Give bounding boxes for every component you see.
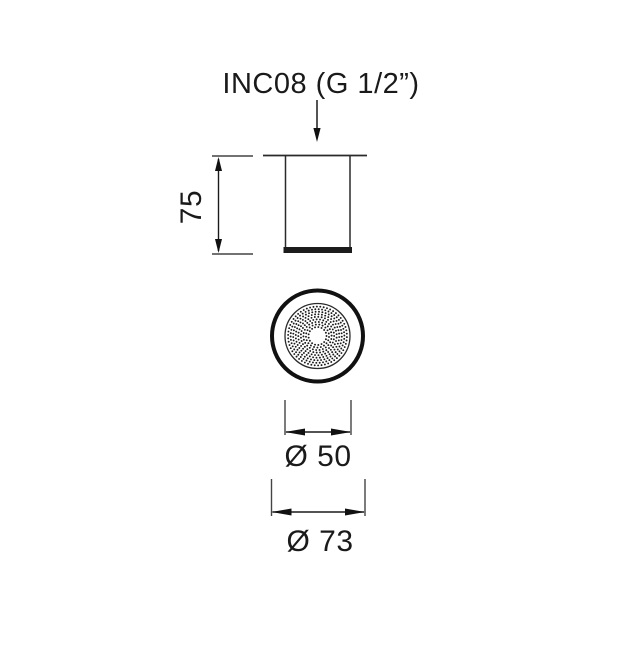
spray-nozzle-dot bbox=[305, 317, 307, 319]
spray-nozzle-dot bbox=[341, 332, 343, 334]
spray-nozzle-dot bbox=[303, 309, 305, 311]
spray-nozzle-dot bbox=[311, 311, 313, 313]
spray-nozzle-dot bbox=[334, 327, 336, 329]
spray-nozzle-dot bbox=[295, 331, 297, 333]
spray-nozzle-dot bbox=[341, 339, 343, 341]
spray-nozzle-dot bbox=[336, 320, 338, 322]
spray-nozzle-dot bbox=[321, 309, 323, 311]
spray-nozzle-dot bbox=[325, 312, 327, 314]
spray-nozzle-dot bbox=[335, 330, 337, 332]
spray-nozzle-dot bbox=[328, 347, 330, 349]
spray-nozzle-dot bbox=[331, 335, 333, 337]
spray-nozzle-dot bbox=[305, 314, 307, 316]
dim-arrow-right bbox=[345, 509, 365, 516]
spray-nozzle-dot bbox=[335, 351, 337, 353]
spray-nozzle-dot bbox=[339, 350, 341, 352]
dim-arrow-left bbox=[272, 509, 292, 516]
spray-nozzle-dot bbox=[296, 356, 298, 358]
spray-nozzle-dot bbox=[307, 357, 309, 359]
spray-nozzle-dot bbox=[297, 344, 299, 346]
spray-nozzle-dot bbox=[336, 333, 338, 335]
spray-nozzle-dot bbox=[333, 317, 335, 319]
spray-nozzle-dot bbox=[342, 349, 344, 351]
spray-nozzle-dot bbox=[305, 350, 307, 352]
spray-nozzle-dot bbox=[327, 329, 329, 331]
spray-nozzle-dot bbox=[314, 344, 316, 346]
spray-nozzle-dot bbox=[312, 319, 314, 321]
spray-nozzle-dot bbox=[319, 319, 321, 321]
spray-nozzle-dot bbox=[317, 316, 319, 318]
spray-nozzle-dot bbox=[312, 362, 314, 364]
spray-nozzle-dot bbox=[335, 346, 337, 348]
spray-nozzle-dot bbox=[309, 320, 311, 322]
spray-nozzle-dot bbox=[330, 356, 332, 358]
spray-nozzle-dot bbox=[324, 309, 326, 311]
spray-nozzle-dot bbox=[338, 355, 340, 357]
side-view-cylinder bbox=[263, 156, 367, 254]
spray-nozzle-dot bbox=[311, 322, 313, 324]
spray-nozzle-dot bbox=[315, 311, 317, 313]
spray-nozzle-dot bbox=[323, 306, 325, 308]
spray-nozzle-dot bbox=[309, 307, 311, 309]
spray-nozzle-dot bbox=[327, 339, 329, 341]
spray-nozzle-dot bbox=[293, 353, 295, 355]
spray-nozzle-dot bbox=[346, 336, 348, 338]
spray-nozzle-dot bbox=[338, 333, 340, 335]
spray-nozzle-dot bbox=[324, 353, 326, 355]
spray-nozzle-dot bbox=[323, 358, 325, 360]
spray-nozzle-dot bbox=[325, 349, 327, 351]
spray-nozzle-dot bbox=[318, 324, 320, 326]
spray-nozzle-dot bbox=[301, 360, 303, 362]
inner-diameter-label: Ø 50 bbox=[284, 440, 351, 473]
spray-nozzle-dot bbox=[313, 346, 315, 348]
spray-nozzle-dot bbox=[289, 324, 291, 326]
spray-nozzle-dot bbox=[343, 338, 345, 340]
spray-nozzle-dot bbox=[306, 339, 308, 341]
height-dimension-label: 75 bbox=[175, 190, 208, 224]
spray-nozzle-dot bbox=[343, 341, 345, 343]
spray-nozzle-dot bbox=[311, 353, 313, 355]
spray-nozzle-dot bbox=[340, 348, 342, 350]
spray-nozzle-dot bbox=[312, 348, 314, 350]
spray-nozzle-dot bbox=[316, 352, 318, 354]
spray-nozzle-dot bbox=[337, 348, 339, 350]
spray-nozzle-dot bbox=[329, 341, 331, 343]
spray-nozzle-dot bbox=[346, 340, 348, 342]
product-code-label: INC08 (G 1/2”) bbox=[222, 68, 419, 100]
spray-nozzle-dot bbox=[333, 320, 335, 322]
spray-nozzle-dot bbox=[319, 362, 321, 364]
spray-nozzle-dot bbox=[298, 358, 300, 360]
spray-nozzle-dot bbox=[314, 321, 316, 323]
spray-nozzle-dot bbox=[303, 358, 305, 360]
spray-nozzle-dot bbox=[328, 311, 330, 313]
spray-nozzle-dot bbox=[323, 341, 325, 343]
spray-nozzle-dot bbox=[343, 323, 345, 325]
spray-nozzle-dot bbox=[339, 326, 341, 328]
spray-nozzle-dot bbox=[344, 346, 346, 348]
spray-nozzle-dot bbox=[319, 352, 321, 354]
spray-nozzle-dot bbox=[334, 343, 336, 345]
spray-nozzle-dot bbox=[328, 323, 330, 325]
spray-nozzle-dot bbox=[291, 326, 293, 328]
spray-nozzle-dot bbox=[312, 356, 314, 358]
spray-nozzle-dot bbox=[322, 351, 324, 353]
spray-nozzle-dot bbox=[305, 336, 307, 338]
spray-nozzle-dot bbox=[318, 311, 320, 313]
spray-nozzle-dot bbox=[310, 345, 312, 347]
spray-nozzle-dot bbox=[341, 325, 343, 327]
spray-nozzle-dot bbox=[311, 342, 313, 344]
spray-nozzle-dot bbox=[330, 349, 332, 351]
spray-nozzle-dot bbox=[317, 359, 319, 361]
spray-nozzle-dot bbox=[311, 328, 313, 330]
spray-nozzle-dot bbox=[340, 329, 342, 331]
spray-nozzle-dot bbox=[323, 345, 325, 347]
spray-nozzle-dot bbox=[319, 349, 321, 351]
spray-nozzle-dot bbox=[298, 347, 300, 349]
spray-nozzle-dot bbox=[300, 325, 302, 327]
spray-nozzle-dot bbox=[326, 307, 328, 309]
spray-nozzle-dot bbox=[314, 354, 316, 356]
spray-nozzle-dot bbox=[291, 321, 293, 323]
spray-nozzle-dot bbox=[308, 315, 310, 317]
spray-nozzle-dot bbox=[295, 351, 297, 353]
spray-nozzle-dot bbox=[333, 314, 335, 316]
spray-nozzle-dot bbox=[322, 319, 324, 321]
spray-nozzle-dot bbox=[306, 308, 308, 310]
spray-nozzle-dot bbox=[302, 313, 304, 315]
spray-nozzle-dot bbox=[327, 316, 329, 318]
spray-nozzle-dot bbox=[306, 326, 308, 328]
dimension-drawing: INC08 (G 1/2”) 75 bbox=[0, 0, 626, 646]
spray-nozzle-dot bbox=[309, 340, 311, 342]
spray-nozzle-dot bbox=[292, 333, 294, 335]
spray-nozzle-dot bbox=[308, 352, 310, 354]
spray-nozzle-dot bbox=[328, 333, 330, 335]
inner-face-circle bbox=[285, 304, 350, 369]
spray-nozzle-dot bbox=[311, 317, 313, 319]
spray-nozzle-dot bbox=[314, 326, 316, 328]
spray-nozzle-dot bbox=[318, 321, 320, 323]
spray-nozzle-dot bbox=[303, 352, 305, 354]
spray-nozzle-dot bbox=[303, 332, 305, 334]
spray-nozzle-dot bbox=[317, 326, 319, 328]
spray-nozzle-dot bbox=[309, 361, 311, 363]
spray-nozzle-dot bbox=[299, 351, 301, 353]
inlet-arrow-icon bbox=[313, 100, 320, 142]
spray-nozzle-dot bbox=[304, 324, 306, 326]
spray-nozzle-dot bbox=[290, 347, 292, 349]
spray-nozzle-dot bbox=[290, 329, 292, 331]
spray-nozzle-dot bbox=[343, 335, 345, 337]
spray-nozzle-dot bbox=[302, 327, 304, 329]
spray-nozzle-dot bbox=[298, 332, 300, 334]
spray-nozzle-dot bbox=[296, 341, 298, 343]
spray-nozzle-dot bbox=[345, 326, 347, 328]
spray-nozzle-dot bbox=[327, 344, 329, 346]
spray-nozzle-dot bbox=[333, 359, 335, 361]
spray-nozzle-dot bbox=[316, 306, 318, 308]
height-dimension: 75 bbox=[175, 156, 253, 254]
spray-nozzle-dot bbox=[305, 320, 307, 322]
spray-nozzle-dot bbox=[321, 311, 323, 313]
spray-nozzle-dot bbox=[318, 313, 320, 315]
diameter-73-dimension: Ø 73 bbox=[272, 479, 366, 558]
spray-nozzle-dot bbox=[327, 319, 329, 321]
spray-nozzle-dot bbox=[312, 351, 314, 353]
spray-nozzle-dot bbox=[332, 354, 334, 356]
spray-nozzle-dot bbox=[337, 343, 339, 345]
spray-nozzle-dot bbox=[294, 343, 296, 345]
spray-nozzle-dot bbox=[338, 323, 340, 325]
spray-nozzle-dot bbox=[338, 314, 340, 316]
spray-nozzle-dot bbox=[290, 336, 292, 338]
spray-nozzle-dot bbox=[330, 338, 332, 340]
spray-nozzle-dot bbox=[318, 308, 320, 310]
spray-nozzle-dot bbox=[329, 328, 331, 330]
spray-nozzle-dot bbox=[334, 349, 336, 351]
spray-nozzle-dot bbox=[335, 312, 337, 314]
spray-nozzle-dot bbox=[293, 323, 295, 325]
spray-nozzle-dot bbox=[287, 331, 289, 333]
spray-nozzle-dot bbox=[327, 362, 329, 364]
spray-nozzle-dot bbox=[336, 326, 338, 328]
spray-nozzle-dot bbox=[336, 316, 338, 318]
spray-nozzle-dot bbox=[289, 344, 291, 346]
spray-nozzle-dot bbox=[307, 342, 309, 344]
spray-nozzle-dot bbox=[327, 357, 329, 359]
spray-nozzle-dot bbox=[300, 311, 302, 313]
spray-nozzle-dot bbox=[296, 327, 298, 329]
spray-nozzle-dot bbox=[306, 345, 308, 347]
spray-nozzle-dot bbox=[308, 333, 310, 335]
spray-nozzle-dot bbox=[328, 336, 330, 338]
spray-nozzle-dot bbox=[302, 335, 304, 337]
spray-nozzle-dot bbox=[326, 355, 328, 357]
spray-nozzle-dot bbox=[324, 317, 326, 319]
spray-nozzle-dot bbox=[306, 360, 308, 362]
spray-nozzle-dot bbox=[305, 332, 307, 334]
spray-nozzle-dot bbox=[317, 364, 319, 366]
outer-diameter-label: Ø 73 bbox=[286, 525, 353, 558]
spray-nozzle-dot bbox=[322, 325, 324, 327]
spray-nozzle-dot bbox=[338, 319, 340, 321]
spray-nozzle-dot bbox=[291, 350, 293, 352]
spray-nozzle-dot bbox=[309, 347, 311, 349]
spray-nozzle-dot bbox=[320, 346, 322, 348]
spray-nozzle-dot bbox=[293, 329, 295, 331]
spray-nozzle-dot bbox=[324, 315, 326, 317]
spray-nozzle-dot bbox=[341, 336, 343, 338]
spray-nozzle-dot bbox=[288, 341, 290, 343]
spray-nozzle-dot bbox=[321, 354, 323, 356]
spray-nozzle-dot bbox=[322, 356, 324, 358]
spray-nozzle-dot bbox=[321, 322, 323, 324]
spray-nozzle-dot bbox=[288, 327, 290, 329]
sprayface-edge-band bbox=[284, 247, 353, 253]
spray-nozzle-dot bbox=[295, 315, 297, 317]
spray-nozzle-dot bbox=[330, 361, 332, 363]
spray-nozzle-dot bbox=[316, 357, 318, 359]
spray-nozzle-dot bbox=[338, 329, 340, 331]
spray-nozzle-dot bbox=[293, 339, 295, 341]
spray-nozzle-dot bbox=[290, 339, 292, 341]
spray-nozzle-dot bbox=[343, 331, 345, 333]
spray-nozzle-dot bbox=[297, 317, 299, 319]
spray-nozzle-dot bbox=[297, 335, 299, 337]
spray-nozzle-dot bbox=[308, 310, 310, 312]
spray-nozzle-dot bbox=[340, 317, 342, 319]
spray-nozzle-dot bbox=[331, 351, 333, 353]
spray-nozzle-dot bbox=[310, 364, 312, 366]
spray-nozzle-dot bbox=[293, 318, 295, 320]
spray-nozzle-dot bbox=[299, 315, 301, 317]
spray-nozzle-dot bbox=[326, 342, 328, 344]
spray-nozzle-dot bbox=[327, 351, 329, 353]
spray-nozzle-dot bbox=[308, 324, 310, 326]
spray-nozzle-dot bbox=[308, 312, 310, 314]
spray-nozzle-dot bbox=[332, 342, 334, 344]
spray-nozzle-dot bbox=[327, 325, 329, 327]
spray-nozzle-dot bbox=[295, 323, 297, 325]
spray-nozzle-dot bbox=[331, 315, 333, 317]
spray-nozzle-dot bbox=[309, 327, 311, 329]
spray-nozzle-dot bbox=[332, 328, 334, 330]
spray-nozzle-dot bbox=[312, 325, 314, 327]
spray-nozzle-dot bbox=[336, 337, 338, 339]
spray-nozzle-dot bbox=[300, 318, 302, 320]
spray-nozzle-dot bbox=[342, 320, 344, 322]
spray-nozzle-dot bbox=[295, 346, 297, 348]
spray-nozzle-dot bbox=[321, 314, 323, 316]
spray-nozzle-dot bbox=[298, 324, 300, 326]
spray-nozzle-dot bbox=[345, 329, 347, 331]
spray-nozzle-dot bbox=[336, 357, 338, 359]
dim-arrow-up bbox=[215, 157, 222, 171]
dim-arrow-right bbox=[331, 429, 351, 436]
spray-nozzle-dot bbox=[330, 331, 332, 333]
spray-nozzle-dot bbox=[320, 359, 322, 361]
spray-nozzle-dot bbox=[300, 321, 302, 323]
spray-nozzle-dot bbox=[304, 362, 306, 364]
spray-nozzle-dot bbox=[332, 310, 334, 312]
spray-nozzle-dot bbox=[331, 312, 333, 314]
spray-nozzle-dot bbox=[342, 344, 344, 346]
spray-nozzle-dot bbox=[295, 337, 297, 339]
spray-nozzle-dot bbox=[328, 314, 330, 316]
spray-nozzle-dot bbox=[323, 329, 325, 331]
spray-nozzle-dot bbox=[300, 333, 302, 335]
spray-nozzle-dot bbox=[302, 343, 304, 345]
spray-nozzle-dot bbox=[332, 346, 334, 348]
spray-nozzle-dot bbox=[311, 309, 313, 311]
spray-nozzle-dot bbox=[301, 330, 303, 332]
spray-nozzle-dot bbox=[319, 306, 321, 308]
spray-nozzle-dot bbox=[291, 342, 293, 344]
spray-nozzle-dot bbox=[300, 350, 302, 352]
spray-nozzle-dot bbox=[316, 347, 318, 349]
spray-nozzle-dot bbox=[335, 323, 337, 325]
spray-nozzle-dot bbox=[311, 314, 313, 316]
spray-nozzle-dot bbox=[313, 306, 315, 308]
spray-nozzle-dot bbox=[329, 309, 331, 311]
spray-nozzle-dot-pattern bbox=[287, 306, 348, 367]
spray-nozzle-dot bbox=[321, 327, 323, 329]
spray-nozzle-dot bbox=[297, 349, 299, 351]
spray-nozzle-dot bbox=[314, 308, 316, 310]
spray-nozzle-dot bbox=[321, 343, 323, 345]
spray-nozzle-dot bbox=[290, 332, 292, 334]
spray-nozzle-dot bbox=[338, 336, 340, 338]
spray-nozzle-dot bbox=[310, 358, 312, 360]
spray-nozzle-dot bbox=[342, 328, 344, 330]
spray-nozzle-dot bbox=[299, 328, 301, 330]
spray-nozzle-dot bbox=[336, 353, 338, 355]
spray-nozzle-dot bbox=[340, 342, 342, 344]
spray-nozzle-dot bbox=[306, 322, 308, 324]
spray-nozzle-dot bbox=[305, 311, 307, 313]
spray-nozzle-dot bbox=[333, 335, 335, 337]
spray-nozzle-dot bbox=[304, 329, 306, 331]
spray-nozzle-dot bbox=[330, 326, 332, 328]
dim-arrow-left bbox=[285, 429, 305, 436]
spray-nozzle-dot bbox=[314, 316, 316, 318]
spray-nozzle-dot bbox=[314, 313, 316, 315]
spray-nozzle-dot bbox=[298, 339, 300, 341]
spray-nozzle-dot bbox=[325, 360, 327, 362]
spray-nozzle-dot bbox=[319, 357, 321, 359]
spray-nozzle-dot bbox=[325, 332, 327, 334]
spray-nozzle-dot bbox=[341, 352, 343, 354]
spray-nozzle-dot bbox=[302, 319, 304, 321]
dim-arrow-down bbox=[215, 239, 222, 253]
spray-nozzle-dot bbox=[318, 354, 320, 356]
spray-nozzle-dot bbox=[330, 318, 332, 320]
spray-nozzle-dot bbox=[315, 349, 317, 351]
spray-nozzle-dot bbox=[346, 333, 348, 335]
spray-nozzle-dot bbox=[297, 313, 299, 315]
spray-nozzle-dot bbox=[297, 354, 299, 356]
spray-nozzle-dot bbox=[295, 334, 297, 336]
spray-nozzle-dot bbox=[301, 340, 303, 342]
spray-nozzle-dot bbox=[333, 332, 335, 334]
spray-nozzle-dot bbox=[338, 346, 340, 348]
spray-nozzle-dot bbox=[307, 363, 309, 365]
spray-nozzle-dot bbox=[304, 346, 306, 348]
spray-nozzle-dot bbox=[324, 327, 326, 329]
spray-nozzle-dot bbox=[307, 329, 309, 331]
spray-nozzle-dot bbox=[333, 338, 335, 340]
spray-nozzle-dot bbox=[324, 364, 326, 366]
spray-nozzle-dot bbox=[345, 343, 347, 345]
spray-nozzle-dot bbox=[332, 324, 334, 326]
spray-nozzle-dot bbox=[300, 337, 302, 339]
spray-nozzle-dot bbox=[292, 345, 294, 347]
spray-nozzle-dot bbox=[300, 345, 302, 347]
spray-nozzle-dot bbox=[325, 338, 327, 340]
spray-nozzle-dot bbox=[303, 339, 305, 341]
spray-nozzle-dot bbox=[307, 318, 309, 320]
spray-nozzle-dot bbox=[313, 359, 315, 361]
diameter-50-dimension: Ø 50 bbox=[284, 400, 351, 473]
spray-nozzle-dot bbox=[329, 353, 331, 355]
spray-nozzle-dot bbox=[309, 350, 311, 352]
spray-nozzle-dot bbox=[287, 334, 289, 336]
spray-nozzle-dot bbox=[308, 337, 310, 339]
technical-drawing-page: INC08 (G 1/2”) 75 bbox=[0, 0, 626, 646]
